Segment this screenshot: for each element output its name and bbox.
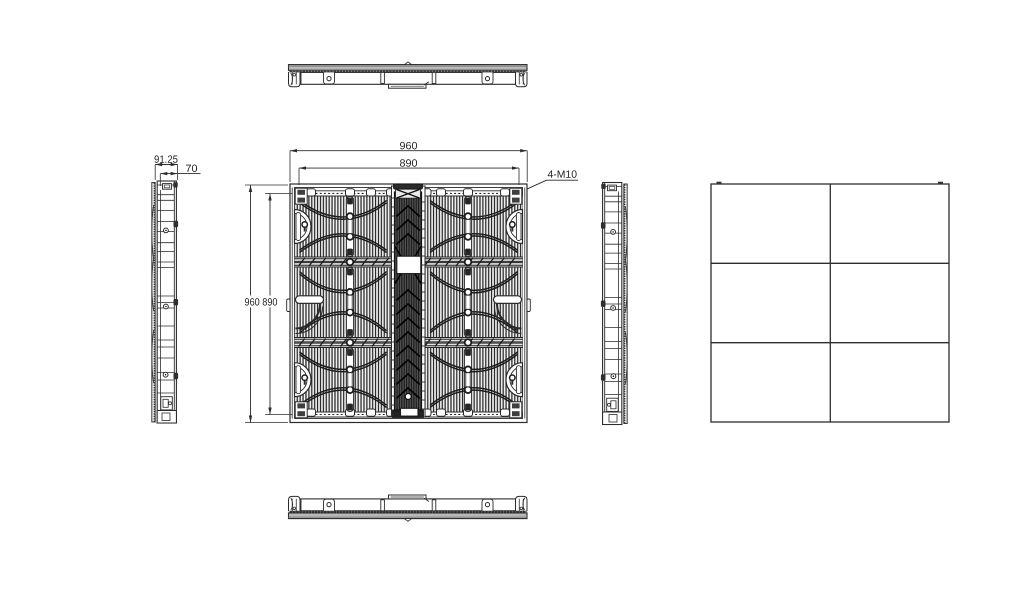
svg-text:890: 890 xyxy=(399,158,417,170)
svg-text:960 890: 960 890 xyxy=(244,296,277,308)
svg-text:960: 960 xyxy=(399,140,417,152)
svg-text:4-M10: 4-M10 xyxy=(547,169,577,181)
svg-text:91.25: 91.25 xyxy=(154,154,178,166)
svg-text:70: 70 xyxy=(185,163,197,175)
